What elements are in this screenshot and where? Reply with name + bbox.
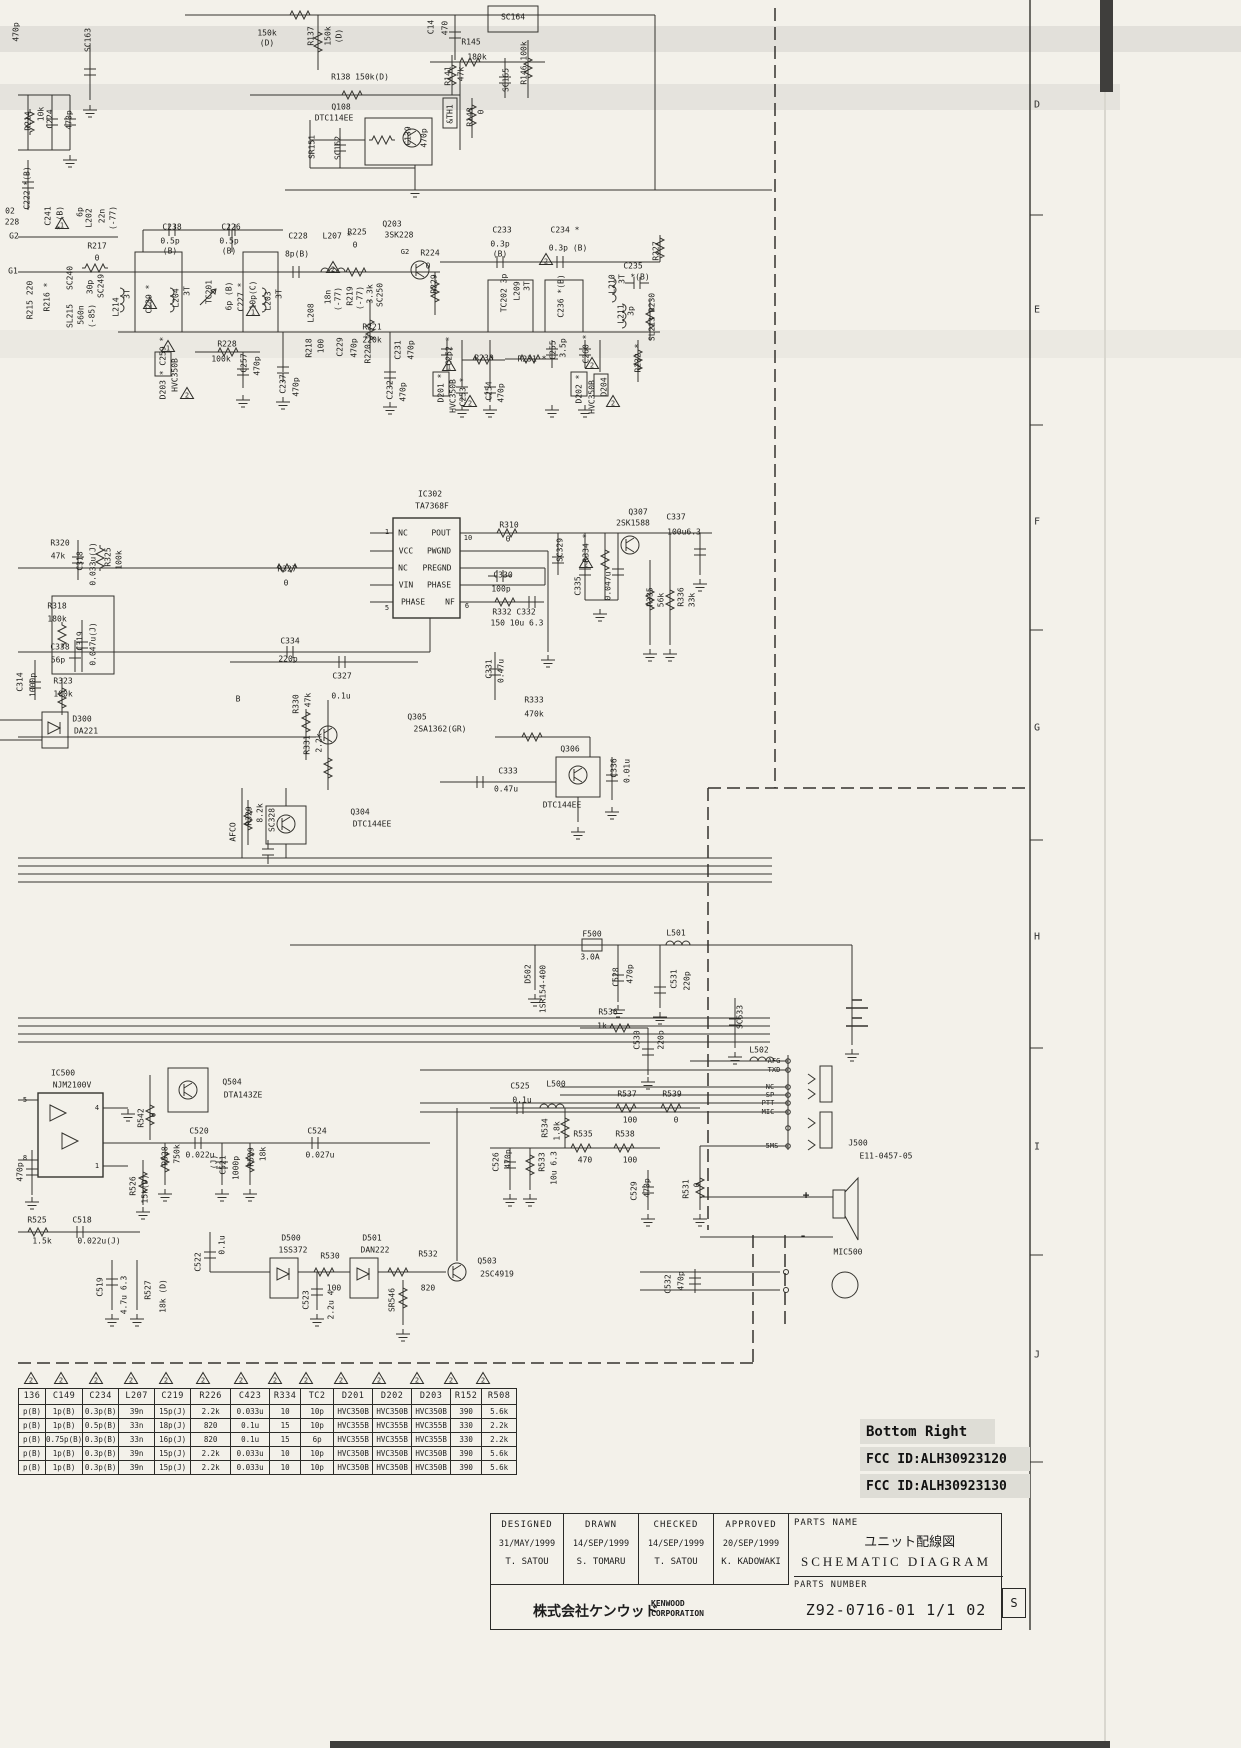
component-label: C525 — [510, 1081, 529, 1090]
svg-text:2: 2 — [29, 1377, 33, 1385]
component-label: DTC144EE — [353, 819, 392, 828]
component-label: (-77) — [333, 287, 342, 311]
component-label: 150 10u 6.3 — [491, 618, 544, 627]
component-label: R537 — [617, 1089, 636, 1098]
component-label: 0.027u — [306, 1150, 335, 1159]
parts-table-cell: 2.2k — [191, 1461, 231, 1475]
component-label: L211 — [616, 304, 625, 323]
component-label: 1000p — [28, 673, 37, 697]
component-label: *(B) — [630, 272, 649, 281]
component-label: SR151 — [307, 135, 316, 159]
component-label: NC — [398, 528, 408, 537]
parts-table-grid: 136C149C234L207C219R226C423R334TC2D201D2… — [18, 1388, 517, 1475]
component-label: 470p — [406, 340, 415, 359]
component-label: Q304 — [350, 807, 369, 816]
revision-triangle-mark: 2 — [476, 1370, 491, 1389]
component-label: 5 — [385, 604, 389, 612]
component-label: R141 — [443, 66, 452, 85]
parts-name-japanese: ユニット配線図 — [864, 1531, 955, 1550]
component-label: DAN222 — [361, 1245, 390, 1254]
component-label: R310 — [499, 520, 518, 529]
parts-table-cell: 0.033u — [231, 1447, 270, 1461]
section-letter-H: H — [1034, 932, 1040, 943]
component-label: C338 — [50, 642, 69, 651]
parts-table-header: D201 — [334, 1389, 373, 1405]
approval-col-designed: DESIGNED31/MAY/1999T. SATOU — [491, 1514, 564, 1584]
svg-text:2: 2 — [584, 561, 588, 569]
parts-table-cell: HVC355B — [412, 1433, 451, 1447]
component-label: Q503 — [477, 1256, 496, 1265]
svg-text:2: 2 — [377, 1377, 381, 1385]
component-label: PTT — [762, 1099, 775, 1107]
component-label: C257 — [239, 353, 248, 372]
component-label: PHASE — [401, 597, 425, 606]
svg-text:2: 2 — [331, 266, 335, 274]
component-label: 470p — [642, 1178, 651, 1197]
revision-triangle-mark: 2 — [410, 1370, 425, 1389]
parts-table-cell: 1p(B) — [46, 1419, 83, 1433]
revision-triangle-mark: 2 — [123, 1370, 138, 1389]
component-label: 33k — [687, 593, 696, 607]
component-label: 220k — [362, 335, 381, 344]
component-label: 470p — [252, 356, 261, 375]
parts-table-cell: 330 — [451, 1419, 482, 1433]
component-label: TC201 — [204, 280, 213, 304]
approval-label: DRAWN — [564, 1520, 638, 1530]
svg-text:2: 2 — [481, 1377, 485, 1385]
component-label: PREGND — [423, 563, 452, 572]
component-label: R528 — [160, 1146, 169, 1165]
svg-text:2: 2 — [185, 392, 189, 400]
component-label: 100k — [114, 550, 123, 569]
component-label: C333 — [498, 766, 517, 775]
component-label: R527 — [143, 1280, 152, 1299]
component-label: 470p — [625, 964, 634, 983]
component-label: D300 — [72, 714, 91, 723]
component-label: 470p — [349, 338, 358, 357]
approval-col-drawn: DRAWN14/SEP/1999S. TOMARU — [564, 1514, 639, 1584]
component-label: R320 — [50, 538, 69, 547]
component-label: SP — [766, 1091, 774, 1099]
component-label: 8.2k — [255, 803, 264, 822]
component-label: 470p — [64, 110, 73, 129]
parts-table-cell: HVC350B — [412, 1405, 451, 1419]
component-label: 0.47u — [494, 784, 518, 793]
component-label: R143 — [465, 107, 474, 126]
component-label: AFCO — [228, 822, 237, 841]
parts-name-label: PARTS NAME — [794, 1518, 858, 1528]
component-label: C334 — [280, 636, 299, 645]
parts-table-header: C149 — [46, 1389, 83, 1405]
title-block: DESIGNED31/MAY/1999T. SATOUDRAWN14/SEP/1… — [490, 1513, 1002, 1630]
component-label: 2SC4919 — [480, 1269, 514, 1278]
parts-table-cell: 820 — [191, 1419, 231, 1433]
component-label: 47k — [303, 693, 312, 707]
approval-label: CHECKED — [639, 1520, 713, 1530]
component-label: DTC144EE — [543, 800, 582, 809]
component-label: C229 — [335, 337, 344, 356]
component-label: C234 * — [551, 225, 580, 234]
component-label: R331 — [302, 735, 311, 754]
component-label: C530 — [632, 1030, 641, 1049]
parts-table-cell: 10 — [270, 1461, 301, 1475]
component-label: R530 — [320, 1251, 339, 1260]
parts-table-row: p(B)1p(B)0.3p(B)39n15p(J)2.2k0.033u1010p… — [19, 1405, 517, 1419]
company-cell: 株式会社ケンウッド KENWOOD CORPORATION — [491, 1584, 789, 1631]
parts-table-cell: HVC350B — [334, 1405, 373, 1419]
schematic-page: 470pSC163150k(D)R137150k(D)R138 150k(D)Q… — [0, 0, 1241, 1748]
component-label: L500 — [546, 1079, 565, 1088]
parts-table-cell: 0.033u — [231, 1405, 270, 1419]
component-label: R323 — [53, 676, 72, 685]
parts-table-cell: 10 — [270, 1405, 301, 1419]
revision-triangle-mark: 1 — [161, 338, 176, 357]
section-letter-J: J — [1034, 1350, 1040, 1361]
component-label: 100k — [211, 354, 230, 363]
component-label: C331 — [484, 659, 493, 678]
component-label: C231 — [393, 340, 402, 359]
revision-triangle-mark: 2 — [606, 393, 621, 412]
component-label: 3T — [122, 289, 131, 299]
parts-table-cell: 5.6k — [482, 1447, 517, 1461]
parts-table-cell: HVC350B — [334, 1461, 373, 1475]
component-label: C524 — [307, 1126, 326, 1135]
component-label: C318 — [75, 551, 84, 570]
component-label: R318 — [47, 601, 66, 610]
component-label: 30p — [85, 280, 94, 294]
component-label: DA221 — [74, 726, 98, 735]
svg-text:2: 2 — [415, 1377, 419, 1385]
revision-triangle-mark: 2 — [444, 1370, 459, 1389]
component-label: SC249 — [96, 274, 105, 298]
component-label: R229 — [429, 274, 438, 293]
parts-name-area: PARTS NAME ユニット配線図 SCHEMATIC DIAGRAM PAR… — [789, 1514, 1003, 1631]
component-label: 470p — [676, 1271, 685, 1290]
parts-table-header: C423 — [231, 1389, 270, 1405]
component-label: 10k — [36, 107, 45, 121]
component-label: 470p — [398, 382, 407, 401]
component-label: (D) — [334, 29, 343, 43]
approval-date: 31/MAY/1999 — [491, 1539, 563, 1549]
component-label: TC202 3p — [499, 274, 508, 313]
parts-table-cell: p(B) — [19, 1405, 46, 1419]
component-label: 22n — [97, 209, 106, 223]
approval-name: K. KADOWAKI — [714, 1557, 788, 1567]
revision-triangle-mark: 2 — [234, 1370, 249, 1389]
component-label: L502 — [749, 1045, 768, 1054]
component-label: C519 — [95, 1277, 104, 1296]
component-label: (-77) — [355, 286, 364, 310]
component-label: (J) — [209, 1155, 218, 1169]
component-label: E11-0457-05 — [860, 1151, 913, 1160]
parts-table-header: 136 — [19, 1389, 46, 1405]
component-label: + — [803, 1190, 810, 1203]
approval-name: T. SATOU — [491, 1557, 563, 1567]
component-label: R531 — [681, 1179, 690, 1198]
revision-triangle-mark: 2 — [579, 554, 594, 573]
component-label: R217 — [87, 241, 106, 250]
approval-date: 14/SEP/1999 — [639, 1539, 713, 1549]
component-label: 150k — [323, 26, 332, 45]
component-label: 220p — [682, 971, 691, 990]
section-letter-F: F — [1034, 517, 1040, 528]
component-label: R330 — [291, 694, 300, 713]
component-label: Q306 — [560, 744, 579, 753]
component-label: 0.3p (B) — [549, 243, 588, 252]
component-label: 470p — [496, 383, 505, 402]
component-label: L203 — [263, 291, 272, 310]
component-label: 470p — [11, 22, 20, 41]
component-label: 100u6.3 — [667, 527, 701, 536]
svg-text:2: 2 — [239, 1377, 243, 1385]
parts-table-cell: 5.6k — [482, 1461, 517, 1475]
component-label: L501 — [666, 928, 685, 937]
component-label: 470p — [15, 1162, 24, 1181]
parts-name-english: SCHEMATIC DIAGRAM — [801, 1554, 991, 1570]
parts-table-cell: HVC355B — [334, 1433, 373, 1447]
parts-table-cell: HVC355B — [373, 1433, 412, 1447]
svg-text:1: 1 — [166, 345, 170, 353]
component-label: NJM2100V — [53, 1080, 92, 1089]
parts-table-header: R508 — [482, 1389, 517, 1405]
component-label: 180k — [47, 614, 66, 623]
component-label: R228 — [217, 339, 236, 348]
component-label: 47k — [456, 67, 465, 81]
svg-text:2: 2 — [200, 1377, 204, 1385]
component-label: 1000p — [231, 1156, 240, 1180]
component-label: HVC350B — [170, 358, 179, 392]
component-label: 180k — [467, 52, 486, 61]
revision-triangle-mark: 2 — [24, 1370, 39, 1389]
fcc-id-2: FCC ID:ALH30923130 — [860, 1474, 1030, 1498]
component-label: D500 — [281, 1233, 300, 1242]
component-label: &TH1 — [445, 104, 454, 123]
component-label: R227 — [651, 241, 660, 260]
component-label: R533 — [537, 1152, 546, 1171]
component-label: 1SR154-400 — [538, 965, 547, 1013]
component-label: AFG — [768, 1057, 781, 1065]
section-letter-E: E — [1034, 305, 1040, 316]
component-label: R536 — [598, 1007, 617, 1016]
parts-number-value: Z92-0716-01 1/1 02 — [806, 1601, 987, 1619]
svg-text:2: 2 — [449, 1377, 453, 1385]
parts-table-cell: HVC355B — [412, 1419, 451, 1433]
component-label: R332 C332 — [492, 607, 535, 616]
parts-table-row: p(B)1p(B)0.3p(B)39n15p(J)2.2k0.033u1010p… — [19, 1447, 517, 1461]
parts-table-cell: HVC355B — [334, 1419, 373, 1433]
component-label: C523 — [301, 1290, 310, 1309]
component-label: C522 — [193, 1252, 202, 1271]
component-label: C327 — [332, 671, 351, 680]
parts-table-cell: 15p(J) — [155, 1405, 191, 1419]
component-label: SL213 R230 — [647, 293, 656, 341]
parts-table-cell: 2.2k — [191, 1447, 231, 1461]
component-label: 2SA1362(GR) — [414, 724, 467, 733]
component-label: 0.01u — [622, 759, 631, 783]
component-label: 1.8k — [552, 1121, 561, 1140]
parts-table-cell: 18p(J) — [155, 1419, 191, 1433]
component-label: 3T — [522, 281, 531, 291]
component-label: 3T — [182, 286, 191, 296]
component-label: 3p — [626, 306, 635, 316]
component-label: 100 — [623, 1115, 637, 1124]
approval-name: S. TOMARU — [564, 1557, 638, 1567]
component-label: 820 — [421, 1283, 435, 1292]
component-label: R529 — [246, 1147, 255, 1166]
parts-table-cell: p(B) — [19, 1447, 46, 1461]
component-label: 47k — [51, 551, 65, 560]
parts-table-cell: 16p(J) — [155, 1433, 191, 1447]
component-label: R327 — [277, 564, 296, 573]
parts-table-cell: 10p — [301, 1405, 334, 1419]
parts-table-row: p(B)0.75p(B)0.3p(B)33n16p(J)8200.1u156pH… — [19, 1433, 517, 1447]
component-label: C330 — [493, 570, 512, 579]
parts-table-cell: 0.3p(B) — [83, 1405, 119, 1419]
component-label: NC — [398, 563, 408, 572]
component-label: D201 * — [436, 374, 445, 403]
component-label: 470 — [578, 1155, 592, 1164]
component-label: 220p — [656, 1030, 665, 1049]
component-label: 0.3p — [490, 239, 509, 248]
revision-triangle-mark: 2 — [180, 385, 195, 404]
component-label: R335 — [645, 587, 654, 606]
component-label: HVC350B — [587, 380, 596, 414]
component-label: 0.1u — [331, 691, 350, 700]
component-label: Q108 — [331, 102, 350, 111]
parts-table-cell: 1p(B) — [46, 1405, 83, 1419]
component-label: 1 — [95, 1162, 99, 1170]
component-label: R225 — [347, 227, 366, 236]
svg-text:1: 1 — [447, 364, 451, 372]
parts-table-header: D202 — [373, 1389, 412, 1405]
company-name-japanese: 株式会社ケンウッド — [533, 1601, 659, 1621]
parts-table-cell: HVC355B — [373, 1419, 412, 1433]
revision-triangle-mark: 2 — [463, 393, 478, 412]
parts-table-cell: 2.2k — [482, 1433, 517, 1447]
fcc-id-1: FCC ID:ALH30923120 — [860, 1447, 1030, 1471]
component-label: C254 — [484, 381, 493, 400]
component-label: 3T — [274, 289, 283, 299]
component-label: HVC350B — [448, 379, 457, 413]
parts-table-header: TC2 — [301, 1389, 334, 1405]
component-label: C255 — [548, 340, 557, 359]
parts-table-cell: 0.75p(B) — [46, 1433, 83, 1447]
component-label: C224 — [45, 109, 54, 128]
svg-text:2: 2 — [59, 1377, 63, 1385]
component-label: 0 — [476, 110, 485, 115]
parts-table-cell: 15 — [270, 1433, 301, 1447]
component-label: 560n — [76, 305, 85, 324]
component-label: 10 — [464, 534, 472, 542]
component-label: MIC500 — [834, 1247, 863, 1256]
component-label: R333 — [524, 695, 543, 704]
parts-table-cell: 0.1u — [231, 1433, 270, 1447]
parts-table-cell: 33n — [119, 1433, 155, 1447]
component-label: 0 — [426, 261, 431, 270]
component-label: 3SK228 — [385, 230, 414, 239]
component-label: 100 — [623, 1155, 637, 1164]
component-label: Q203 — [382, 219, 401, 228]
parts-table-cell: 2.2k — [191, 1405, 231, 1419]
parts-table-cell: HVC350B — [334, 1447, 373, 1461]
component-label: R535 — [573, 1129, 592, 1138]
component-label: C532 — [663, 1274, 672, 1293]
component-label: L209 — [512, 281, 521, 300]
component-label: 6p — [75, 207, 84, 217]
component-label: C232 — [385, 380, 394, 399]
svg-text:1: 1 — [148, 302, 152, 310]
component-label: F500 — [582, 929, 601, 938]
component-label: 150k — [257, 28, 276, 37]
svg-text:2: 2 — [273, 1377, 277, 1385]
revision-triangle-mark: 2 — [195, 1370, 210, 1389]
component-label: 15k(D) — [140, 1175, 149, 1204]
component-label: R215 220 — [25, 281, 34, 320]
parts-table-cell: 5.6k — [482, 1405, 517, 1419]
component-label: B — [236, 694, 241, 703]
fcc-id-block: Bottom Right FCC ID:ALH30923120 FCC ID:A… — [860, 1419, 1030, 1501]
component-label: 0.033u(J) — [88, 542, 97, 585]
component-label: C521 — [218, 1155, 227, 1174]
component-label: 6p (B) — [224, 282, 233, 311]
component-label: 1.5k — [32, 1236, 51, 1245]
component-label: J500 — [848, 1138, 867, 1147]
component-label: C241 — [43, 206, 52, 225]
svg-text:2: 2 — [163, 1377, 167, 1385]
component-label: (B) — [163, 246, 177, 255]
component-label: 100k — [53, 689, 72, 698]
component-label: C233 — [492, 225, 511, 234]
component-label: 0.022u(J) — [77, 1236, 120, 1245]
parts-table-cell: 390 — [451, 1405, 482, 1419]
svg-text:2: 2 — [590, 362, 594, 370]
component-label: L204 — [171, 288, 180, 307]
parts-table-cell: HVC350B — [412, 1447, 451, 1461]
revision-triangle-mark: 2 — [88, 1370, 103, 1389]
component-label: SC162 — [333, 136, 342, 160]
component-label: SC328 — [267, 808, 276, 832]
parts-table-cell: 0.3p(B) — [83, 1447, 119, 1461]
component-label: Q504 — [222, 1077, 241, 1086]
revision-triangle-mark: 1 — [55, 215, 70, 234]
revision-triangle-mark: 2 — [158, 1370, 173, 1389]
component-label: 3.3k — [365, 284, 374, 303]
component-label: TA7368F — [415, 501, 449, 510]
component-label: 0.47u — [496, 659, 505, 683]
approval-label: APPROVED — [714, 1520, 788, 1530]
parts-table-cell: HVC350B — [373, 1405, 412, 1419]
component-label: NF — [445, 597, 455, 606]
svg-text:2: 2 — [304, 1377, 308, 1385]
revision-triangle-mark: 2 — [372, 1370, 387, 1389]
parts-table-cell: 10p — [301, 1419, 334, 1433]
component-label: 470 — [440, 21, 449, 35]
component-label: G2 — [9, 231, 19, 240]
component-label: 0 — [148, 1113, 157, 1118]
component-label: 0 — [674, 1115, 679, 1124]
component-label: R214 — [23, 111, 32, 130]
component-label: 3.5p — [558, 338, 567, 357]
component-label: C518 — [72, 1215, 91, 1224]
section-letter-I: I — [1034, 1142, 1040, 1153]
component-label: D501 — [362, 1233, 381, 1242]
component-label: 470p — [291, 377, 300, 396]
component-label: POUT — [431, 528, 450, 537]
component-label: R232 * — [633, 344, 642, 373]
component-label: R221 — [362, 322, 381, 331]
component-label: SC533 — [735, 1005, 744, 1029]
component-label: R534 — [540, 1118, 549, 1137]
